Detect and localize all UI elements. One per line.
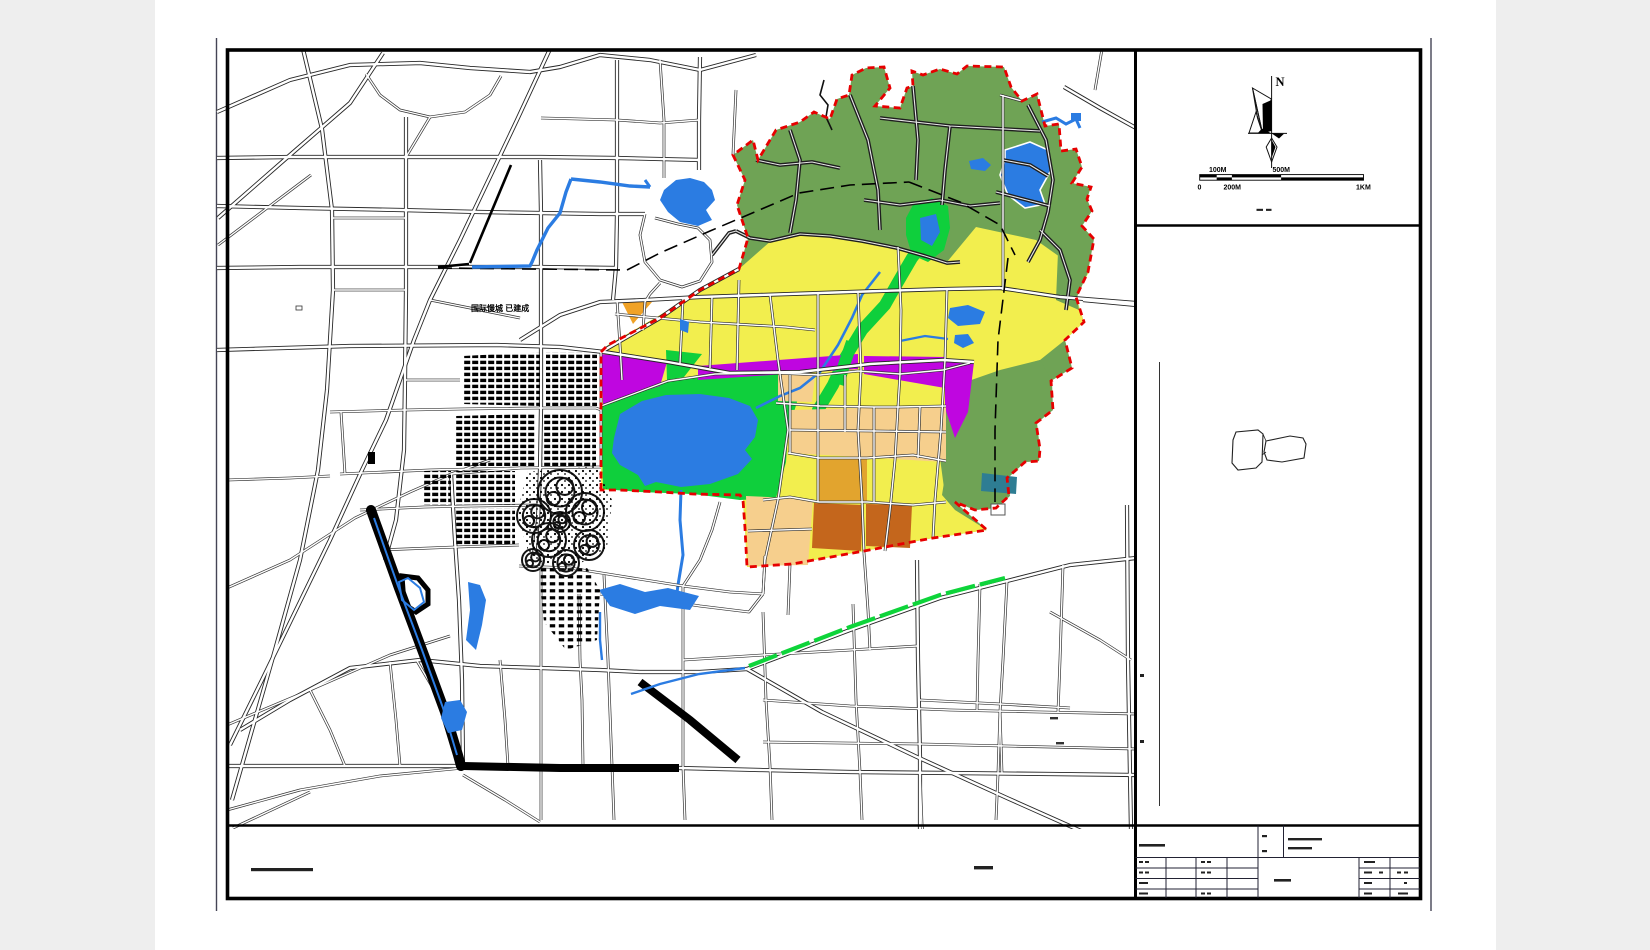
- svg-text:100M: 100M: [1209, 167, 1227, 174]
- svg-text:500M: 500M: [1273, 167, 1291, 174]
- svg-text:N: N: [1276, 75, 1285, 89]
- svg-text:1KM: 1KM: [1356, 185, 1371, 192]
- svg-text:200M: 200M: [1224, 185, 1242, 192]
- svg-text:0: 0: [1198, 185, 1202, 192]
- svg-text:国际慢城 已建成: 国际慢城 已建成: [471, 303, 529, 313]
